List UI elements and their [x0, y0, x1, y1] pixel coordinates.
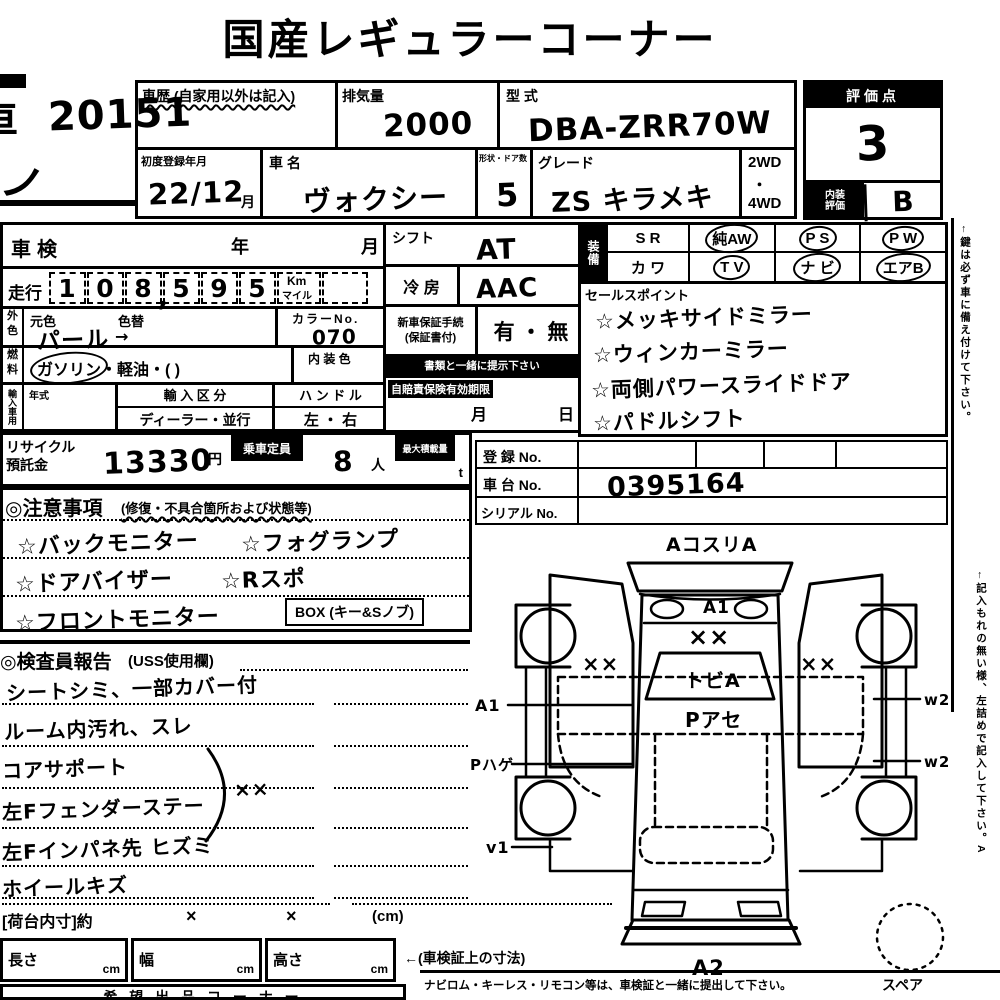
dotted-rule: [334, 827, 468, 829]
displacement-cell: 排気量 2000: [335, 80, 500, 150]
height-cell: 高さ cm: [265, 938, 396, 982]
recycle-row: リサイクル預託金 13330 円 乗車定員 8 人 最大積載量 t: [0, 432, 472, 487]
history-cell: 車歴 (自家用以外は記入): [135, 80, 338, 150]
doors-cell: 形状・ドア数 5: [475, 147, 533, 219]
capacity-unit: 人: [371, 455, 385, 475]
mileage-digit: 8: [125, 272, 162, 304]
bed-dims-cm: (cm): [372, 908, 404, 925]
ac-label: 冷 房: [386, 267, 460, 304]
sales-point-item: ☆パドルシフト: [593, 402, 746, 437]
dotted-rule: [2, 903, 330, 905]
mileage-label: 走行: [8, 279, 42, 304]
equip-sr: S R: [606, 225, 688, 253]
first-reg-value: 22/12: [147, 174, 244, 211]
serial-no-label: シリアル No.: [481, 503, 557, 522]
capacity-value: 8: [332, 445, 354, 479]
fuel-side-label: 燃料: [3, 348, 24, 382]
sales-points-box: セールスポイント ☆メッキサイドミラー ☆ウィンカーミラー ☆両側パワースライド…: [578, 281, 948, 437]
car-name-value: ヴォクシー: [302, 175, 448, 220]
import-side-label: 輸入車用: [3, 385, 24, 429]
shaken-row: 車検 年 月: [0, 222, 386, 269]
mileage-row: 走行 1 0 8 , 5 9 5 Km マイル: [0, 266, 386, 309]
sales-point-item: ☆メッキサイドミラー: [595, 298, 814, 336]
mileage-digit: 9: [201, 272, 238, 304]
serial-no-row: シリアル No.: [475, 496, 948, 525]
equip-airbag: エアB: [859, 253, 945, 281]
note-item: ☆バックモニター: [16, 523, 199, 561]
headlight-left: [651, 600, 683, 618]
dotted-rule: [240, 669, 468, 671]
length-cell: 長さ cm: [0, 938, 128, 982]
mark-right-fender-xx: ××: [800, 652, 837, 676]
recycle-yen: 円: [208, 449, 222, 469]
equip-ps: P S: [774, 225, 860, 253]
right-rear-bracket: [800, 839, 882, 871]
reg-divider: [695, 442, 697, 467]
score-box: 評価点 3 内装評価 B: [803, 80, 943, 220]
shift-box: シフト AT: [383, 222, 581, 267]
notes-title: ◎注意事項: [5, 492, 102, 521]
ac-value: AAC: [475, 273, 538, 305]
equip-aw: 純AW: [688, 225, 774, 253]
fuel-options: ガソリン・軽油・( ): [37, 356, 180, 380]
grade-value: ZS キラメキ: [550, 175, 714, 220]
doors-value: 5: [495, 176, 520, 215]
auction-sheet: 国産レギュラーコーナー 車 20151 ノ 車歴 (自家用以外は記入) 排気量 …: [0, 0, 1000, 1000]
mileage-unit-km: Km: [287, 274, 306, 288]
lot-underline: [0, 200, 135, 206]
color-arrow: →: [115, 327, 129, 346]
dims-source-note: ←(車検証上の寸法): [404, 948, 525, 968]
corner-char-clip: 車: [0, 88, 22, 138]
equipment-side-label: 装備: [581, 225, 606, 281]
insurance-month: 月: [471, 401, 487, 425]
bottom-rule: [420, 970, 1000, 973]
import-year-label: 年式: [29, 387, 49, 402]
ext-color-side-label: 外色: [3, 309, 24, 345]
desired-corner-label: 希 望 出 品 コ ー ナ ー: [3, 987, 403, 1000]
rear-bumper: [622, 920, 800, 944]
height-unit: cm: [371, 962, 388, 976]
mark-left-fender-xx: ××: [582, 652, 619, 676]
rear-window-dashed: [640, 827, 773, 863]
dotted-rule: [334, 897, 468, 899]
first-reg-label: 初度登録年月: [141, 153, 207, 169]
dotted-rule: [2, 865, 314, 867]
sales-point-item: ☆ウィンカーミラー: [593, 333, 790, 370]
width-cell: 幅 cm: [131, 938, 262, 982]
report-top-rule: [0, 640, 470, 644]
insurance-label: 自賠責保険有効期限: [388, 380, 493, 398]
label-left-phage: Pハゲ: [470, 756, 514, 774]
reg-divider: [835, 442, 837, 467]
car-name-cell: 車 名 ヴォクシー: [260, 147, 478, 219]
side-note-keys: ←鍵は必ず車に備え付けて下さい。: [958, 224, 973, 569]
model-code-label: 型 式: [506, 86, 538, 106]
label-left-a1: A1: [475, 696, 501, 715]
dotted-rule: [2, 703, 314, 705]
width-unit: cm: [237, 962, 254, 976]
box-key-label: BOX (キー&Sノブ): [285, 598, 424, 626]
history-label: 車歴 (自家用以外は記入): [142, 86, 295, 106]
first-reg-cell: 初度登録年月 22/12 月: [135, 147, 263, 219]
length-label: 長さ: [8, 949, 38, 970]
shaken-month-label: 月: [361, 233, 379, 259]
drive-dot: ・: [752, 174, 767, 195]
report-line: 左Fフェンダーステー: [2, 789, 206, 825]
max-load-label: 最大積載量: [395, 435, 455, 461]
report-line: ルーム内汚れ、スレ: [4, 710, 194, 746]
sales-points-title: セールスポイント: [585, 285, 689, 304]
import-class-value: ディーラー・並行: [118, 408, 272, 431]
mark-hood-a1: A1: [703, 598, 730, 618]
desired-corner-row: 希 望 出 品 コ ー ナ ー: [0, 984, 406, 1000]
chassis-no-label: 車 台 No.: [483, 475, 541, 495]
insurance-box: 自賠責保険有効期限 月 日: [383, 375, 581, 433]
report-title: ◎検査員報告: [0, 647, 112, 674]
left-rear-wheel: [521, 781, 575, 835]
note-item: ☆Rスポ: [220, 561, 306, 596]
bottom-note: ナビロム・キーレス・リモコン等は、車検証と一緒に提出して下さい。: [424, 977, 1000, 993]
shift-value: AT: [475, 232, 517, 266]
dotted-rule: [3, 519, 469, 521]
left-rear-bracket: [550, 839, 632, 871]
shaken-label: 車検: [11, 233, 63, 262]
interior-color-cell: 内 装 色: [291, 348, 386, 382]
width-label: 幅: [139, 949, 154, 970]
insurance-day: 日: [558, 401, 574, 425]
equipment-grid: 装備 S R 純AW P S P W カ ワ T V ナ ビ エアB: [578, 222, 948, 284]
side-note-fill: ←記入もれの無い様、左詰めで記入して下さい。A: [974, 570, 989, 995]
import-row: 輸入車用 年式 輸 入 区 分 ディーラー・並行 ハ ン ド ル 左 ・ 右: [0, 382, 386, 432]
dotted-rule: [3, 595, 469, 597]
taillight-left: [642, 902, 685, 916]
report-line: シートシミ、一部カバー付: [6, 669, 259, 707]
model-code-cell: 型 式 DBA-ZRR70W: [497, 80, 797, 150]
taillight-right: [738, 902, 781, 916]
left-front-wheel: [521, 609, 575, 663]
drive-2wd: 2WD: [748, 154, 781, 171]
note-item: ☆フロントモニター: [15, 598, 221, 637]
model-code-value: DBA-ZRR70W: [527, 105, 772, 149]
grade-label: グレード: [538, 153, 594, 173]
equip-tv: T V: [688, 253, 774, 281]
fuel-row: 燃料 ガソリン・軽油・( ) 内 装 色: [0, 345, 386, 385]
reg-divider: [577, 442, 579, 467]
mark-cabin: Pアセ: [685, 708, 742, 732]
handle-cell: ハ ン ド ル 左 ・ 右: [272, 385, 386, 429]
equip-pw: P W: [859, 225, 945, 253]
doors-label: 形状・ドア数: [479, 153, 527, 164]
mileage-digit: 1: [49, 272, 86, 304]
chassis-no-row: 車 台 No. 0395164: [475, 467, 948, 498]
length-unit: cm: [103, 962, 120, 976]
dotted-rule: [3, 557, 469, 559]
serial-divider: [577, 498, 579, 523]
spare-tire-dotted: [877, 904, 943, 970]
mileage-digit: 0: [87, 272, 124, 304]
equip-navi: ナ ビ: [774, 253, 860, 281]
color-no-cell: カラーNo. 070: [275, 309, 386, 345]
warranty-options: 有 ・ 無: [478, 307, 584, 354]
reg-divider: [763, 442, 765, 467]
sales-point-item: ☆両側パワースライドドア: [591, 365, 853, 404]
note-item: ☆ドアバイザー: [14, 561, 173, 598]
label-right-w2-bottom: w2: [924, 753, 950, 771]
drive-4wd: 4WD: [748, 195, 781, 212]
car-name-label: 車 名: [269, 153, 301, 173]
mileage-comma: ,: [158, 283, 169, 313]
mark-front-scuff: AコスリA: [666, 535, 757, 556]
bed-dims-label: [荷台内寸]約: [2, 908, 93, 932]
chassis-divider: [577, 469, 579, 496]
right-front-wheel: [857, 609, 911, 663]
import-class-label: 輸 入 区 分: [118, 385, 272, 408]
headlight-right: [735, 600, 767, 618]
warranty-box: 新車保証手続(保証書付) 有 ・ 無: [383, 304, 581, 357]
fuel-gasoline-circled: ガソリン: [37, 356, 101, 380]
handle-label: ハ ン ド ル: [275, 385, 386, 408]
front-bumper: [628, 563, 792, 591]
max-load-unit: t: [459, 465, 463, 480]
mileage-digit: 5: [239, 272, 276, 304]
corner-clip: [0, 74, 26, 88]
dotted-rule: [334, 865, 468, 867]
recycle-value: 13330: [102, 443, 213, 482]
ac-box: 冷 房 AAC: [383, 264, 581, 307]
displacement-value: 2000: [382, 105, 473, 144]
recycle-label: リサイクル預託金: [6, 439, 75, 474]
report-line: 左Fインパネ先 ヒズミ: [2, 829, 215, 865]
bed-dims-x: ×: [286, 906, 297, 927]
page-title: 国産レギュラーコーナー: [0, 6, 940, 67]
drive-cell: 2WD ・ 4WD: [739, 147, 797, 219]
interior-color-label: 内 装 色: [308, 350, 351, 367]
handle-value: 左 ・ 右: [275, 408, 386, 431]
color-row: 外色 元色 色替 パール → カラーNo. 070: [0, 306, 386, 348]
mark-hood-xx: ××: [688, 623, 730, 651]
dotted-rule: [2, 827, 314, 829]
dotted-rule: [2, 897, 314, 899]
dotted-rule: [334, 745, 468, 747]
bed-dims-x: ×: [186, 906, 197, 927]
first-reg-unit: 月: [241, 192, 255, 212]
mileage-empty-cell: [322, 272, 368, 304]
label-right-w2-top: w2: [924, 691, 950, 709]
notes-box: ◎注意事項 (修復・不具合箇所および状態等) ☆バックモニター ☆フォグランプ …: [0, 487, 472, 632]
car-damage-diagram: AコスリA A1 ×× トビA Pアセ ×× ×× A1 Pハゲ v1 w2 w…: [470, 535, 962, 1000]
report-subtitle: (USS使用欄): [128, 650, 214, 671]
grade-cell: グレード ZS キラメキ: [530, 147, 742, 219]
mileage-unit-mile: マイル: [282, 287, 312, 302]
shaken-year-label: 年: [231, 233, 249, 259]
report-section: ◎検査員報告 (USS使用欄) シートシミ、一部カバー付 ルーム内汚れ、スレ コ…: [0, 645, 470, 905]
mileage-unit-cell: Km マイル: [277, 272, 321, 304]
interior-score-label: 内装評価: [806, 183, 864, 220]
score-label: 評価点: [806, 83, 940, 108]
equip-kawa: カ ワ: [606, 253, 688, 281]
dotted-rule: [334, 787, 468, 789]
capacity-label: 乗車定員: [231, 435, 303, 461]
label-left-v1: v1: [486, 838, 510, 857]
right-rear-wheel: [857, 781, 911, 835]
report-line: コアサポート: [2, 751, 129, 784]
height-label: 高さ: [273, 949, 303, 970]
interior-score-value: B: [863, 182, 940, 222]
displacement-label: 排気量: [342, 86, 384, 106]
note-item: ☆フォグランプ: [240, 521, 399, 558]
warranty-label: 新車保証手続(保証書付): [386, 307, 478, 354]
reg-no-label: 登 録 No.: [483, 447, 541, 467]
notes-subtitle: (修復・不具合箇所および状態等): [121, 498, 312, 517]
corner-char: 車: [0, 88, 18, 138]
score-value: 3: [805, 106, 941, 183]
shift-label: シフト: [392, 228, 434, 248]
reg-no-row: 登 録 No.: [475, 440, 948, 469]
dotted-rule: [334, 703, 468, 705]
report-brace-mark: ××: [234, 776, 270, 801]
import-class-cell: 輸 入 区 分 ディーラー・並行: [115, 385, 272, 429]
mark-windshield-chip: トビA: [685, 670, 741, 692]
dotted-rule: [2, 745, 314, 747]
warranty-note: 書類と一緒に提示下さい: [383, 355, 581, 376]
